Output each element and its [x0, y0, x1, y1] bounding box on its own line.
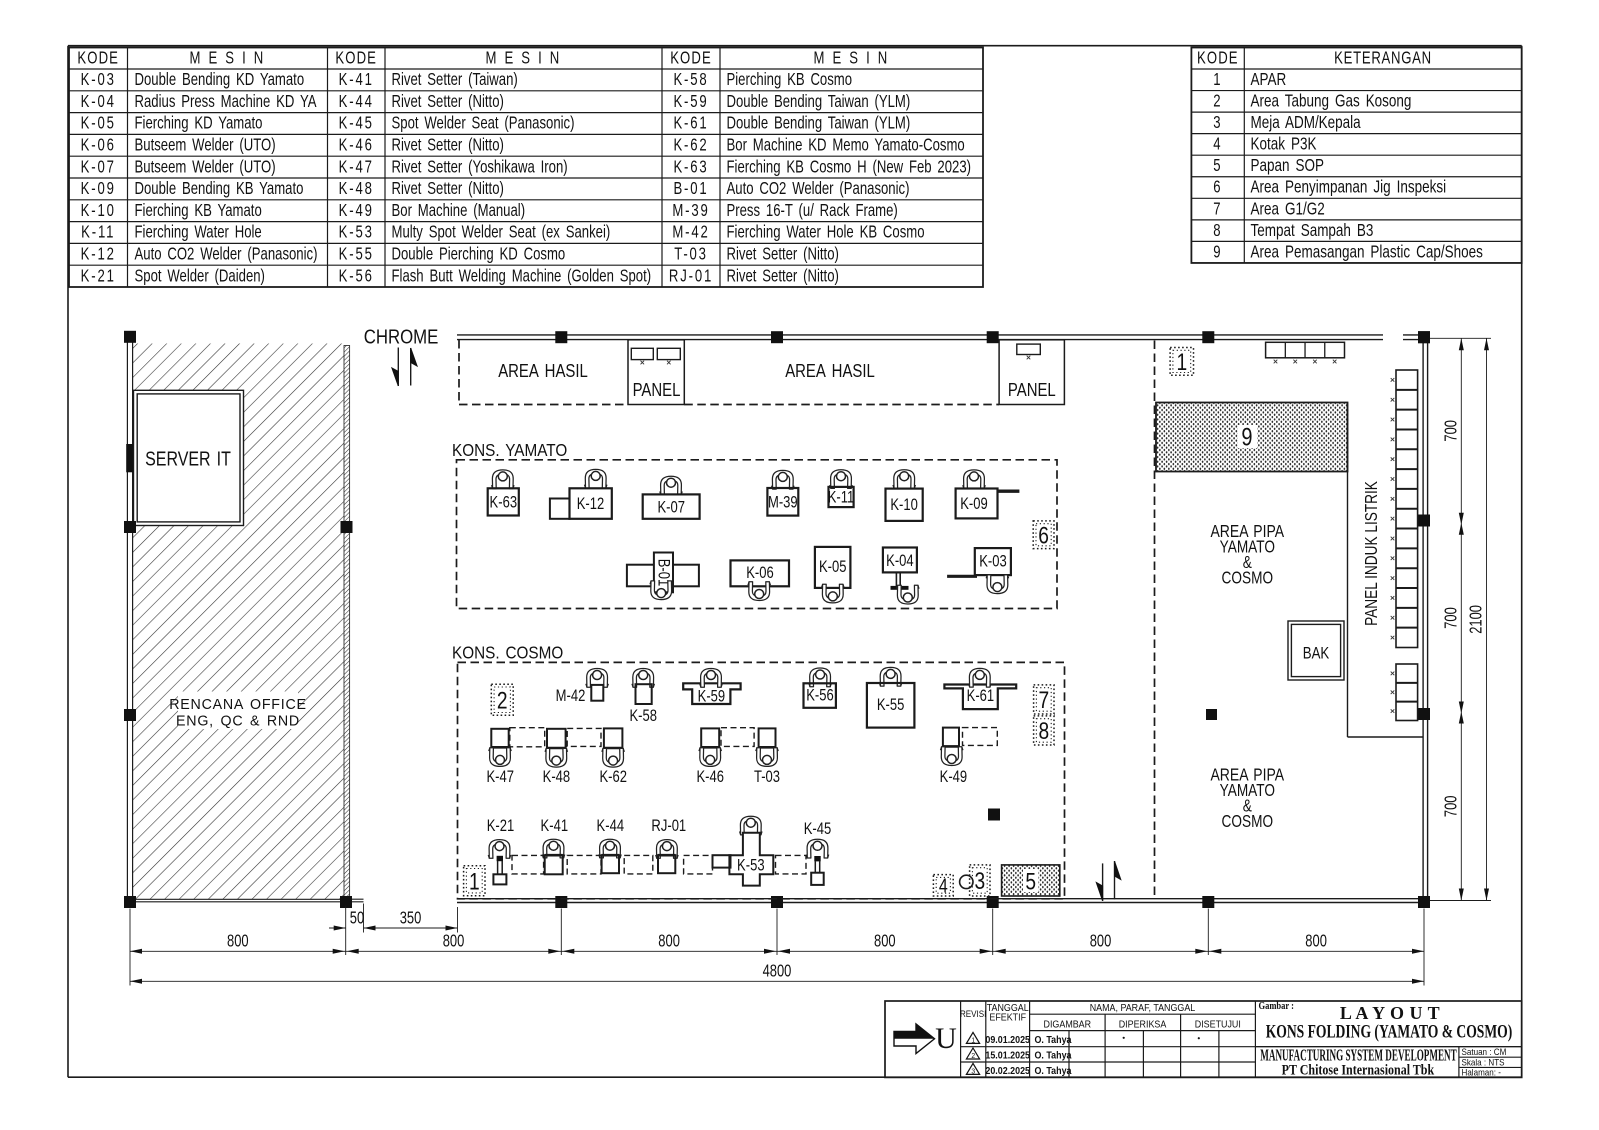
svg-text:800: 800	[874, 932, 896, 951]
svg-text:DIGAMBAR: DIGAMBAR	[1044, 1019, 1092, 1031]
svg-text:4800: 4800	[763, 962, 792, 981]
svg-text:Satuan : CM: Satuan : CM	[1462, 1047, 1507, 1058]
svg-text:Rivet Setter (Nitto): Rivet Setter (Nitto)	[392, 179, 504, 198]
svg-text:K-55: K-55	[877, 697, 905, 715]
svg-text:4: 4	[1213, 135, 1222, 154]
svg-text:RJ-01: RJ-01	[669, 266, 713, 285]
svg-text:K-11: K-11	[81, 223, 115, 242]
svg-text:Fierching Water Hole: Fierching Water Hole	[135, 223, 262, 242]
svg-text:K-45: K-45	[804, 821, 832, 839]
svg-text:K-10: K-10	[81, 201, 116, 220]
svg-text:KODE: KODE	[77, 49, 119, 68]
svg-text:Kotak P3K: Kotak P3K	[1251, 135, 1317, 154]
svg-text:K-62: K-62	[599, 769, 627, 787]
svg-text:Area Pemasangan Plastic Cap/Sh: Area Pemasangan Plastic Cap/Shoes	[1251, 243, 1483, 262]
svg-text:Auto CO2 Welder (Panasonic): Auto CO2 Welder (Panasonic)	[135, 245, 318, 264]
svg-text:1: 1	[1176, 348, 1187, 376]
svg-text:DISETUJUI: DISETUJUI	[1195, 1019, 1241, 1031]
svg-text:Skala : NTS: Skala : NTS	[1462, 1057, 1505, 1068]
svg-text:Tempat Sampah B3: Tempat Sampah B3	[1251, 221, 1374, 240]
svg-text:APAR: APAR	[1251, 70, 1287, 89]
svg-text:K-04: K-04	[886, 553, 914, 571]
svg-text:K-59: K-59	[698, 688, 726, 706]
svg-text:K-09: K-09	[81, 179, 116, 198]
svg-text:K-59: K-59	[673, 92, 708, 111]
svg-text:KONS. YAMATO: KONS. YAMATO	[452, 440, 567, 460]
svg-text:KODE: KODE	[670, 49, 712, 68]
svg-text:5: 5	[1025, 867, 1036, 895]
svg-text:K-63: K-63	[490, 494, 518, 512]
svg-text:2: 2	[971, 1052, 975, 1060]
svg-text:K-45: K-45	[339, 114, 374, 133]
svg-text:K-53: K-53	[339, 223, 374, 242]
svg-text:K-03: K-03	[979, 553, 1007, 571]
svg-text:800: 800	[443, 932, 465, 951]
svg-text:Rivet Setter (Yoshikawa Iron): Rivet Setter (Yoshikawa Iron)	[392, 157, 568, 176]
svg-text:B-01: B-01	[673, 179, 708, 198]
svg-text:NAMA, PARAF, TANGGAL: NAMA, PARAF, TANGGAL	[1090, 1002, 1196, 1014]
svg-text:Fierching Water Hole KB Cosmo: Fierching Water Hole KB Cosmo	[727, 223, 925, 242]
svg-text:KODE: KODE	[1197, 49, 1239, 68]
svg-text:9: 9	[1241, 423, 1252, 451]
svg-text:PANEL: PANEL	[633, 380, 681, 401]
svg-text:COSMO: COSMO	[1222, 813, 1274, 832]
svg-text:15.01.2025: 15.01.2025	[985, 1050, 1030, 1062]
svg-text:M E S I N: M E S I N	[814, 49, 890, 68]
svg-text:K-61: K-61	[673, 114, 708, 133]
svg-text:Spot Welder (Daiden): Spot Welder (Daiden)	[135, 266, 265, 285]
svg-text:Rivet Setter (Nitto): Rivet Setter (Nitto)	[727, 245, 839, 264]
svg-text:K-62: K-62	[673, 136, 708, 155]
svg-text:700: 700	[1442, 796, 1461, 818]
svg-text:800: 800	[227, 932, 249, 951]
svg-text:Meja ADM/Kepala: Meja ADM/Kepala	[1251, 113, 1361, 132]
svg-text:T-03: T-03	[754, 769, 780, 787]
svg-text:09.01.2025: 09.01.2025	[985, 1034, 1030, 1046]
svg-text:K-05: K-05	[819, 559, 847, 577]
svg-text:RJ-01: RJ-01	[651, 818, 686, 836]
svg-text:7: 7	[1038, 686, 1049, 714]
svg-text:K-11: K-11	[828, 489, 855, 507]
svg-text:K-53: K-53	[737, 857, 765, 875]
svg-text:4: 4	[939, 875, 948, 897]
svg-text:Area G1/G2: Area G1/G2	[1251, 200, 1325, 219]
svg-text:Rivet Setter (Taiwan): Rivet Setter (Taiwan)	[392, 70, 518, 89]
svg-text:ENG, QC & RND: ENG, QC & RND	[176, 713, 300, 729]
svg-text:PANEL INDUK LISTRIK: PANEL INDUK LISTRIK	[1363, 481, 1382, 626]
svg-text:K-63: K-63	[673, 157, 708, 176]
svg-text:K-10: K-10	[890, 497, 918, 515]
svg-text:PANEL: PANEL	[1008, 380, 1056, 401]
svg-text:KONS. COSMO: KONS. COSMO	[452, 642, 563, 662]
svg-text:K-07: K-07	[657, 499, 685, 517]
svg-text:Fierching KD Yamato: Fierching KD Yamato	[135, 114, 263, 133]
svg-text:Bor Machine (Manual): Bor Machine (Manual)	[392, 201, 526, 220]
svg-text:O. Tahya: O. Tahya	[1035, 1050, 1073, 1062]
svg-text:800: 800	[658, 932, 680, 951]
svg-text:Multy Spot Welder Seat (ex San: Multy Spot Welder Seat (ex Sankei)	[392, 223, 611, 242]
svg-text:2: 2	[497, 686, 508, 714]
svg-text:K-06: K-06	[81, 136, 116, 155]
svg-text:BAK: BAK	[1303, 644, 1330, 663]
svg-text:5: 5	[1213, 156, 1222, 175]
svg-text:Papan SOP: Papan SOP	[1251, 156, 1324, 175]
svg-text:9: 9	[1213, 243, 1222, 262]
svg-text:K-47: K-47	[339, 157, 374, 176]
svg-text:CHROME: CHROME	[364, 325, 439, 348]
svg-text:K-58: K-58	[673, 70, 708, 89]
svg-text:Double Bending KD Yamato: Double Bending KD Yamato	[135, 70, 305, 89]
svg-text:REVISI: REVISI	[960, 1008, 986, 1019]
svg-text:L A Y O U T: L A Y O U T	[1340, 1003, 1440, 1023]
svg-text:Butseem Welder (UTO): Butseem Welder (UTO)	[135, 136, 276, 155]
svg-text:Rivet Setter (Nitto): Rivet Setter (Nitto)	[727, 266, 839, 285]
svg-text:SERVER IT: SERVER IT	[145, 448, 231, 470]
svg-text:K-12: K-12	[81, 245, 116, 264]
svg-text:Bor Machine KD Memo Yamato-Cos: Bor Machine KD Memo Yamato-Cosmo	[727, 136, 965, 155]
svg-text:M-42: M-42	[556, 688, 586, 706]
svg-text:6: 6	[1213, 178, 1222, 197]
svg-text:20.02.2025: 20.02.2025	[985, 1065, 1030, 1077]
svg-text:M E S I N: M E S I N	[486, 49, 562, 68]
svg-text:3: 3	[971, 1067, 975, 1075]
svg-text:8: 8	[1213, 221, 1222, 240]
svg-text:COSMO: COSMO	[1222, 569, 1274, 588]
svg-text:Pierching KB Cosmo: Pierching KB Cosmo	[727, 70, 853, 89]
svg-text:K-47: K-47	[486, 769, 514, 787]
svg-text:K-49: K-49	[339, 201, 374, 220]
svg-text:M-42: M-42	[672, 223, 709, 242]
svg-text:RENCANA OFFICE: RENCANA OFFICE	[169, 696, 306, 712]
svg-text:Area Penyimpanan Jig Inspeksi: Area Penyimpanan Jig Inspeksi	[1251, 178, 1447, 197]
svg-text:T-03: T-03	[674, 245, 708, 264]
svg-text:Press 16-T (u/ Rack Frame): Press 16-T (u/ Rack Frame)	[727, 201, 898, 220]
svg-text:Fierching KB Yamato: Fierching KB Yamato	[135, 201, 262, 220]
svg-text:KONS FOLDING (YAMATO & COSMO): KONS FOLDING (YAMATO & COSMO)	[1266, 1022, 1513, 1043]
svg-text:M-39: M-39	[768, 494, 798, 512]
svg-text:800: 800	[1090, 932, 1112, 951]
svg-text:1: 1	[1213, 70, 1222, 89]
svg-text:K-58: K-58	[629, 708, 657, 726]
svg-text:700: 700	[1442, 607, 1461, 629]
svg-text:Spot Welder Seat (Panasonic): Spot Welder Seat (Panasonic)	[392, 114, 575, 133]
svg-text:Gambar :: Gambar :	[1259, 1001, 1294, 1012]
svg-text:EFEKTIF: EFEKTIF	[989, 1012, 1026, 1024]
svg-text:3: 3	[1213, 113, 1222, 132]
svg-text:Radius Press Machine KD YA: Radius Press Machine KD YA	[135, 92, 317, 111]
svg-text:K-49: K-49	[940, 769, 968, 787]
svg-text:Flash Butt Welding Machine (Go: Flash Butt Welding Machine (Golden Spot)	[392, 266, 652, 285]
svg-text:800: 800	[1305, 932, 1327, 951]
svg-text:M E S I N: M E S I N	[190, 49, 266, 68]
svg-text:3: 3	[974, 867, 985, 895]
svg-text:K-21: K-21	[487, 818, 515, 836]
svg-text:Butseem Welder (UTO): Butseem Welder (UTO)	[135, 157, 276, 176]
svg-text:K-41: K-41	[541, 818, 569, 836]
svg-text:K-06: K-06	[746, 565, 774, 583]
svg-text:K-48: K-48	[339, 179, 374, 198]
svg-text:U: U	[935, 1022, 957, 1055]
svg-text:K-03: K-03	[81, 70, 116, 89]
svg-text:350: 350	[400, 909, 422, 928]
svg-text:Area Tabung Gas Kosong: Area Tabung Gas Kosong	[1251, 92, 1412, 111]
svg-text:K-56: K-56	[339, 266, 374, 285]
svg-text:Halaman: -: Halaman: -	[1462, 1067, 1501, 1078]
svg-text:O. Tahya: O. Tahya	[1035, 1034, 1073, 1046]
svg-text:PT Chitose Internasional Tbk: PT Chitose Internasional Tbk	[1282, 1061, 1435, 1077]
svg-text:7: 7	[1213, 199, 1222, 218]
svg-text:K-12: K-12	[577, 496, 605, 514]
svg-text:AREA HASIL: AREA HASIL	[785, 361, 875, 382]
svg-text:50: 50	[350, 909, 364, 928]
svg-text:K-41: K-41	[339, 70, 374, 89]
svg-text:K-21: K-21	[81, 266, 116, 285]
svg-text:AREA HASIL: AREA HASIL	[498, 361, 588, 382]
svg-text:K-09: K-09	[960, 496, 988, 514]
svg-text:Rivet Setter (Nitto): Rivet Setter (Nitto)	[392, 92, 504, 111]
svg-text:Double Bending Taiwan (YLM): Double Bending Taiwan (YLM)	[727, 92, 911, 111]
svg-text:2: 2	[1213, 92, 1222, 111]
svg-text:1: 1	[469, 867, 480, 895]
svg-text:1: 1	[971, 1036, 975, 1044]
svg-text:K-04: K-04	[81, 92, 116, 111]
svg-text:8: 8	[1038, 717, 1049, 745]
svg-text:Fierching KB Cosmo H (New Feb: Fierching KB Cosmo H (New Feb 2023)	[727, 157, 972, 176]
svg-text:K-07: K-07	[81, 157, 116, 176]
svg-text:K-44: K-44	[339, 92, 374, 111]
svg-text:K-55: K-55	[339, 245, 374, 264]
svg-text:M-39: M-39	[672, 201, 709, 220]
svg-text:KETERANGAN: KETERANGAN	[1334, 49, 1432, 68]
svg-text:K-46: K-46	[696, 769, 724, 787]
svg-text:O. Tahya: O. Tahya	[1035, 1065, 1073, 1077]
svg-text:K-44: K-44	[597, 818, 625, 836]
svg-text:K-56: K-56	[806, 687, 834, 705]
svg-text:Double Pierching KD Cosmo: Double Pierching KD Cosmo	[392, 245, 566, 264]
svg-text:KODE: KODE	[335, 49, 377, 68]
svg-text:2100: 2100	[1467, 605, 1486, 634]
svg-text:Rivet Setter (Nitto): Rivet Setter (Nitto)	[392, 136, 504, 155]
svg-text:Auto CO2 Welder (Panasonic): Auto CO2 Welder (Panasonic)	[727, 179, 910, 198]
svg-text:DIPERIKSA: DIPERIKSA	[1119, 1019, 1167, 1031]
svg-text:6: 6	[1038, 521, 1049, 549]
svg-text:Double Bending KB Yamato: Double Bending KB Yamato	[135, 179, 304, 198]
svg-text:K-46: K-46	[339, 136, 374, 155]
svg-text:K-05: K-05	[81, 114, 116, 133]
svg-text:Double Bending Taiwan (YLM): Double Bending Taiwan (YLM)	[727, 114, 911, 133]
svg-text:K-61: K-61	[967, 688, 995, 706]
svg-text:700: 700	[1442, 420, 1461, 442]
svg-text:K-48: K-48	[543, 769, 571, 787]
